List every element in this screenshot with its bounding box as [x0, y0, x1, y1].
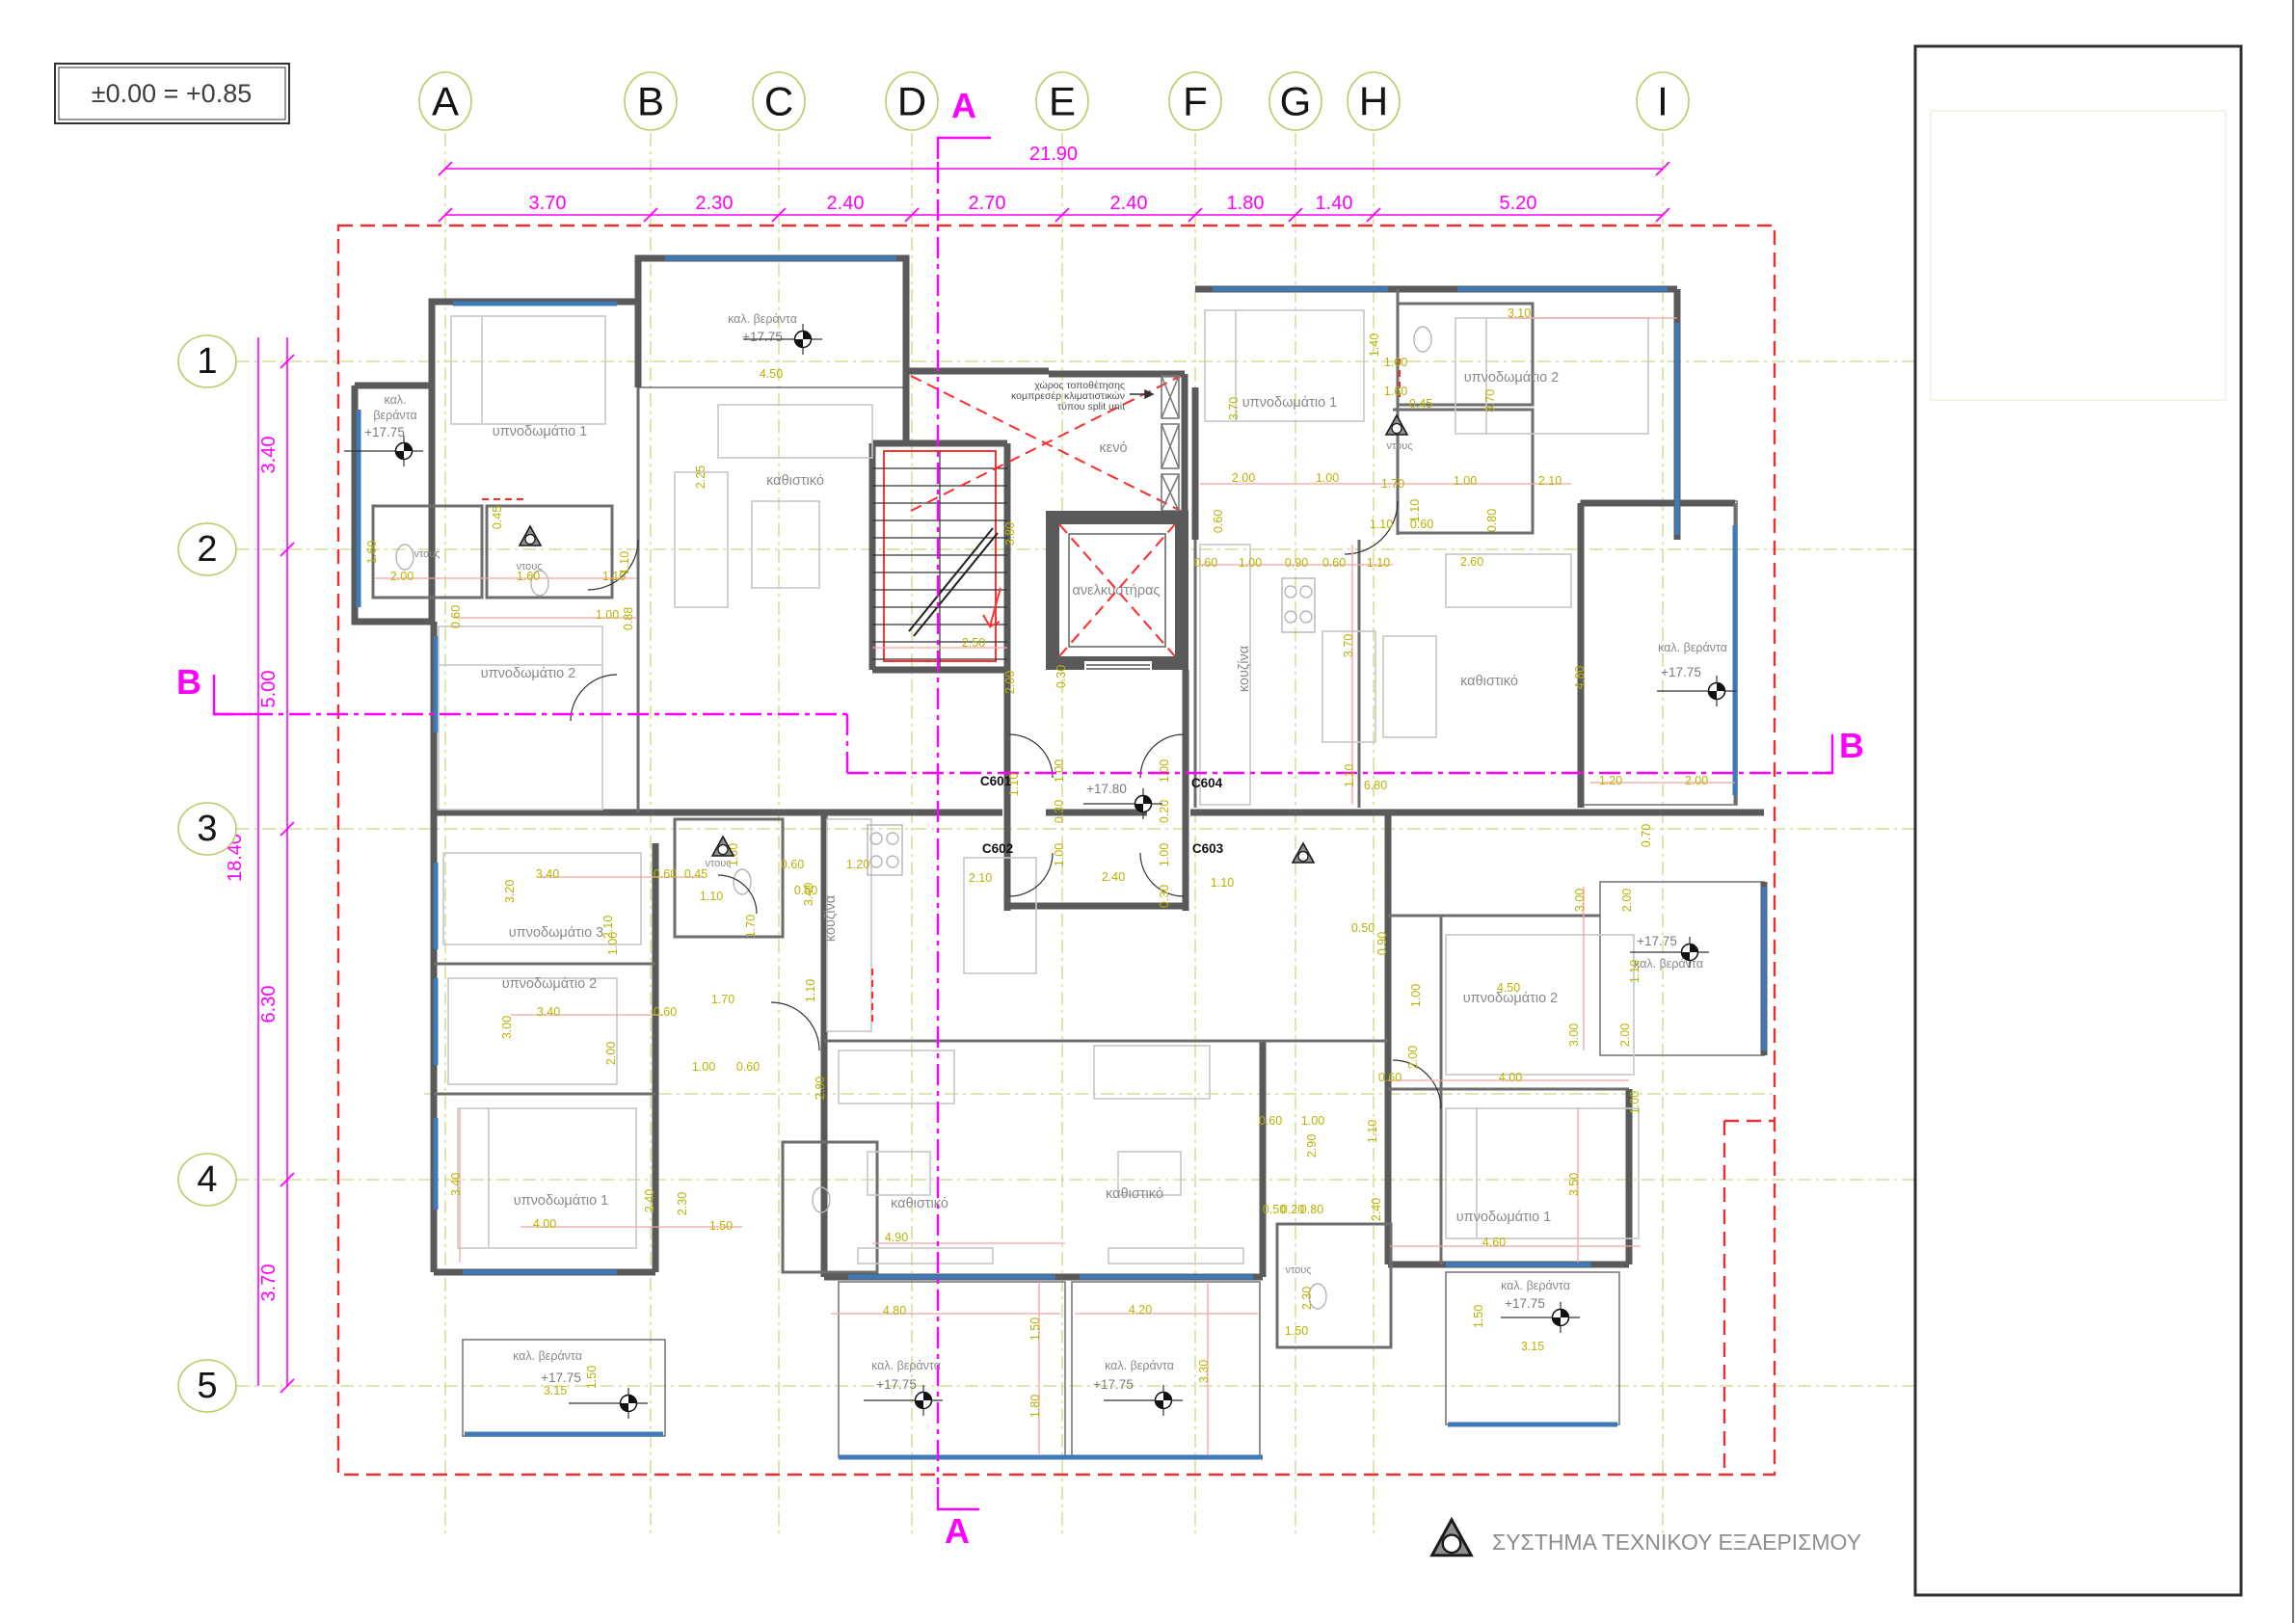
top-dim-3.70: 3.70: [529, 193, 567, 214]
dim-label: 1.10: [700, 890, 723, 903]
dim-label: 1.40: [1368, 333, 1381, 357]
top-dim-2.40: 2.40: [1110, 193, 1148, 214]
room-label: καλ. βεράντα: [1501, 1279, 1570, 1292]
dim-label: 2.00: [1003, 671, 1017, 694]
dim-label: 1.50: [709, 1219, 733, 1233]
dim-label: 0.80: [1485, 509, 1499, 532]
dim-label: 1.00: [1053, 843, 1066, 866]
dim-label: 0.45: [1409, 397, 1432, 411]
apartment-code-C602: C602: [982, 841, 1013, 856]
room-label: υπνοδωμάτιο 1: [493, 424, 587, 439]
dim-label: 0.88: [622, 607, 635, 630]
dim-label: 1.60: [517, 570, 540, 583]
dim-label: 1.50: [1285, 1324, 1308, 1338]
grid-row-label-3: 3: [197, 809, 217, 849]
dim-label: 2.40: [1370, 1198, 1383, 1221]
top-dim-5.20: 5.20: [1500, 193, 1537, 214]
dim-label: 3.10: [1508, 306, 1531, 320]
room-label: βεράντα: [373, 409, 416, 422]
dim-label: 1.00: [1316, 471, 1339, 485]
room-label: καθιστικό: [1106, 1186, 1163, 1202]
top-dim-1.40: 1.40: [1316, 193, 1353, 214]
dim-label: 3.80: [1003, 522, 1017, 545]
dim-label: 2.40: [643, 1189, 656, 1212]
title-block: [1915, 0, 2293, 1623]
room-label: +17.80: [1086, 782, 1127, 796]
room-label: +17.75: [876, 1377, 917, 1392]
dim-label: 2.30: [676, 1192, 689, 1215]
dim-label: 1.20: [846, 858, 869, 871]
dim-label: 0.60: [1378, 1071, 1402, 1084]
dim-label: 1.70: [711, 993, 734, 1006]
dim-label: 0.30: [1053, 800, 1066, 823]
total-width-dim: 21.90: [1029, 144, 1078, 165]
dim-label: 1.70: [1381, 477, 1404, 491]
grid-column-label-H: H: [1359, 79, 1388, 124]
dim-label: 2.00: [1232, 471, 1255, 485]
dim-label: 3.40: [536, 867, 559, 881]
room-label: καθιστικό: [1460, 674, 1518, 689]
room-label: ντους: [414, 548, 440, 560]
apartment-code-C603: C603: [1192, 841, 1224, 856]
dim-label: 4.00: [1499, 1071, 1522, 1084]
room-label: ντους: [1386, 440, 1412, 452]
left-dim-6.30: 6.30: [258, 986, 280, 1024]
dim-label: 1.20: [1599, 774, 1622, 787]
room-label: καλ. βεράντα: [1658, 641, 1727, 654]
dim-label: 2.00: [1685, 774, 1708, 787]
dim-label: 3.40: [537, 1005, 560, 1019]
dim-label: 0.60: [781, 858, 804, 871]
dim-label: 4.80: [883, 1304, 906, 1317]
dim-label: 1.10: [1211, 876, 1234, 890]
dim-label: 2.00: [1406, 1046, 1420, 1069]
room-label: υπνοδωμάτιο 1: [514, 1193, 608, 1209]
dim-label: 1.00: [1628, 1091, 1642, 1114]
grid-column-label-E: E: [1049, 79, 1076, 124]
room-label: καθιστικό: [891, 1196, 948, 1211]
room-label: +17.75: [1661, 665, 1701, 679]
dim-label: 3.30: [1197, 1360, 1211, 1383]
dim-label: 1.00: [692, 1060, 715, 1074]
dim-label: 1.00: [1158, 843, 1171, 866]
room-label: κουζίνα: [1237, 646, 1252, 692]
dim-label: 3.00: [500, 1016, 514, 1039]
floor-plan-canvas: 21.90 18.40 3.702.302.402.702.401.801.40…: [0, 0, 2296, 1623]
grid-column-label-A: A: [432, 79, 459, 124]
room-label: καλ. βεράντα: [1105, 1359, 1174, 1372]
dim-label: 0.60: [1259, 1114, 1282, 1128]
dim-label: 0.60: [449, 605, 463, 628]
dim-label: 1.50: [585, 1366, 599, 1389]
room-label: υπνοδωμάτιο 1: [1242, 395, 1337, 411]
dim-label: 2.30: [1300, 1287, 1314, 1310]
dim-label: 0.30: [1055, 665, 1068, 688]
dim-label: 0.60: [1194, 556, 1217, 570]
dim-label: 1.50: [1028, 1317, 1042, 1341]
dim-label: 2.10: [1538, 474, 1562, 488]
dim-label: 1.00: [1158, 759, 1171, 783]
room-label: υπνοδωμάτιο 1: [1456, 1210, 1551, 1225]
room-label: υπνοδωμάτιο 3: [509, 925, 603, 941]
dim-label: 1.60: [365, 541, 379, 564]
dim-label: 3.70: [1483, 389, 1497, 412]
room-label: +17.75: [1637, 934, 1677, 948]
elevation-note-box: ±0.00 = +0.85: [55, 64, 289, 123]
dim-label: 1.00: [1409, 984, 1423, 1007]
dim-label: 2.00: [1618, 1024, 1632, 1047]
apartment-code-C604: C604: [1191, 776, 1223, 790]
left-dim-3.40: 3.40: [258, 437, 280, 474]
grid-column-label-G: G: [1280, 79, 1312, 124]
dim-label: 3.00: [1573, 889, 1587, 912]
elevation-note-text: ±0.00 = +0.85: [92, 79, 252, 108]
room-label: +17.75: [1093, 1377, 1134, 1392]
room-label: +17.75: [742, 330, 783, 344]
dim-label: 1.10: [1370, 518, 1393, 531]
dim-label: 0.90: [1285, 556, 1308, 570]
elevator-door: [1084, 661, 1152, 673]
grid-column-label-B: B: [637, 79, 664, 124]
dim-label: 2.50: [962, 636, 985, 650]
room-label: ντους: [1285, 1264, 1311, 1276]
dim-label: 3.15: [544, 1384, 567, 1397]
dim-label: 1.00: [1301, 1114, 1324, 1128]
dim-label: 4.00: [533, 1217, 556, 1231]
grid-row-label-5: 5: [197, 1366, 217, 1406]
dim-label: 6.80: [1364, 779, 1387, 792]
room-label: υπνοδωμάτιο 2: [1464, 370, 1559, 386]
dim-label: 3.50: [1567, 1173, 1581, 1196]
dim-label: 2.10: [969, 871, 992, 885]
dim-label: 4.50: [1497, 981, 1520, 995]
room-label: κενό: [1099, 440, 1127, 456]
dim-label: 0.80: [1300, 1203, 1323, 1216]
dim-label: 1.80: [1028, 1395, 1042, 1418]
room-label: υπνοδωμάτιο 2: [481, 666, 575, 681]
room-label: +17.75: [1505, 1296, 1545, 1311]
dim-label: 1.70: [744, 915, 758, 938]
dim-label: 4.20: [1129, 1303, 1152, 1317]
dim-label: 0.60: [1322, 556, 1346, 570]
dim-label: 2.00: [390, 570, 414, 583]
left-dim-5.00: 5.00: [258, 671, 280, 708]
dim-label: 1.50: [1472, 1305, 1485, 1328]
dim-label: 0.50: [1351, 921, 1375, 935]
dim-label: 1.10: [1343, 764, 1356, 787]
room-label: ανελκυστήρας: [1073, 583, 1161, 599]
section-marker-A: A: [945, 1511, 970, 1551]
dim-label: 0.60: [736, 1060, 760, 1074]
dim-label: 1.10: [1628, 960, 1642, 983]
dim-label: 1.60: [1384, 385, 1407, 398]
dim-label: 4.80: [1573, 666, 1587, 689]
dim-label: 1.00: [1239, 556, 1262, 570]
room-label: υπνοδωμάτιο 2: [502, 976, 597, 992]
dim-label: 4.50: [760, 367, 783, 381]
dim-label: 1.00: [606, 932, 620, 955]
section-marker-A: A: [951, 86, 976, 125]
dim-label: 1.00: [1053, 759, 1066, 783]
grid-row-label-4: 4: [197, 1159, 217, 1200]
dim-label: 0.70: [1640, 824, 1653, 847]
room-label: καλ. βεράντα: [871, 1359, 941, 1372]
dim-label: 2.90: [1305, 1134, 1319, 1157]
dim-label: 3.70: [1227, 397, 1241, 420]
legend-text: ΣΥΣΤΗΜΑ ΤΕΧΝΙΚΟΥ ΕΞΑΕΡΙΣΜΟΥ: [1492, 1530, 1861, 1555]
dim-label: 2.00: [1620, 889, 1634, 912]
dim-label: 1.10: [1408, 499, 1422, 522]
apartment-code-C601: C601: [980, 774, 1012, 788]
dim-label: 2.00: [604, 1042, 618, 1065]
dim-label: 0.60: [1212, 510, 1225, 533]
room-label: τύπου split unit: [1057, 401, 1125, 412]
top-dim-2.30: 2.30: [696, 193, 734, 214]
dim-label: 0.30: [1158, 885, 1171, 908]
room-label: καλ. βεράντα: [513, 1349, 582, 1363]
dim-label: 1.60: [1384, 356, 1407, 369]
grid-column-label-C: C: [764, 79, 793, 124]
grid-column-label-D: D: [897, 79, 926, 124]
dim-label: 4.60: [1482, 1236, 1506, 1249]
dim-label: 0.90: [1375, 932, 1389, 955]
dim-label: 1.00: [1454, 474, 1477, 488]
top-dim-2.70: 2.70: [969, 193, 1006, 214]
dim-label: 0.45: [684, 867, 707, 881]
dim-label: 1.10: [618, 551, 631, 574]
dim-label: 3.40: [449, 1173, 463, 1196]
top-dim-2.40: 2.40: [827, 193, 865, 214]
grid-column-label-I: I: [1657, 79, 1669, 124]
grid-row-label-2: 2: [197, 529, 217, 570]
room-label: +17.75: [364, 425, 405, 439]
dim-label: 3.20: [503, 880, 517, 903]
dim-label: 1.10: [1367, 556, 1390, 570]
dim-label: 3.15: [1521, 1340, 1544, 1353]
dim-label: 4.90: [885, 1231, 908, 1244]
room-label: καλ. βεράντα: [728, 312, 797, 326]
dim-label: 2.60: [1460, 555, 1483, 569]
top-dim-1.80: 1.80: [1227, 193, 1265, 214]
section-marker-B: B: [176, 662, 201, 702]
section-marker-B: B: [1839, 726, 1864, 765]
dim-label: 1.10: [804, 979, 817, 1002]
dim-label: 1.00: [596, 608, 619, 622]
dim-label: 0.60: [654, 1005, 677, 1019]
dim-label: 1.10: [1366, 1120, 1379, 1143]
left-dim-3.70: 3.70: [258, 1264, 280, 1302]
grid-row-label-1: 1: [197, 341, 217, 382]
room-label: +17.75: [541, 1370, 581, 1385]
dim-label: 0.45: [491, 506, 504, 529]
dim-label: 0.60: [654, 867, 677, 881]
dim-label: 3.70: [1342, 634, 1355, 657]
dim-label: 3.40: [802, 883, 815, 906]
dim-label: 2.80: [814, 1077, 827, 1100]
dim-label: 3.00: [1567, 1024, 1581, 1047]
dim-label: 2.40: [1102, 870, 1125, 884]
room-label: καλ.: [384, 393, 406, 407]
room-label: κουζίνα: [823, 895, 839, 942]
dim-label: 2.25: [694, 466, 707, 489]
room-label: καθιστικό: [766, 473, 824, 489]
grid-column-label-F: F: [1183, 79, 1208, 124]
